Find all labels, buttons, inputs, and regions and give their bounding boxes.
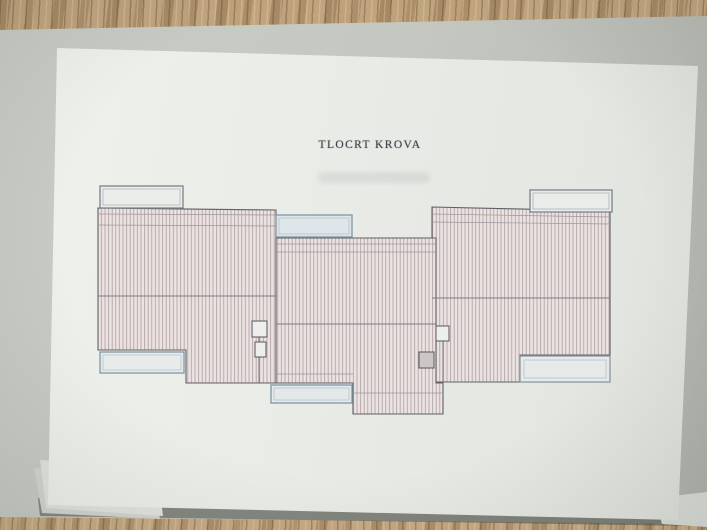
chimney-left-upper [252,321,267,337]
photo-scene: TLOCRT KROVA [0,0,707,530]
roof-plan-drawing [0,0,707,530]
chimney-left-lower [255,342,266,357]
roof-sections-group [98,207,610,414]
chimney-right-upper [436,326,449,341]
chimney-right-lower [419,352,434,368]
